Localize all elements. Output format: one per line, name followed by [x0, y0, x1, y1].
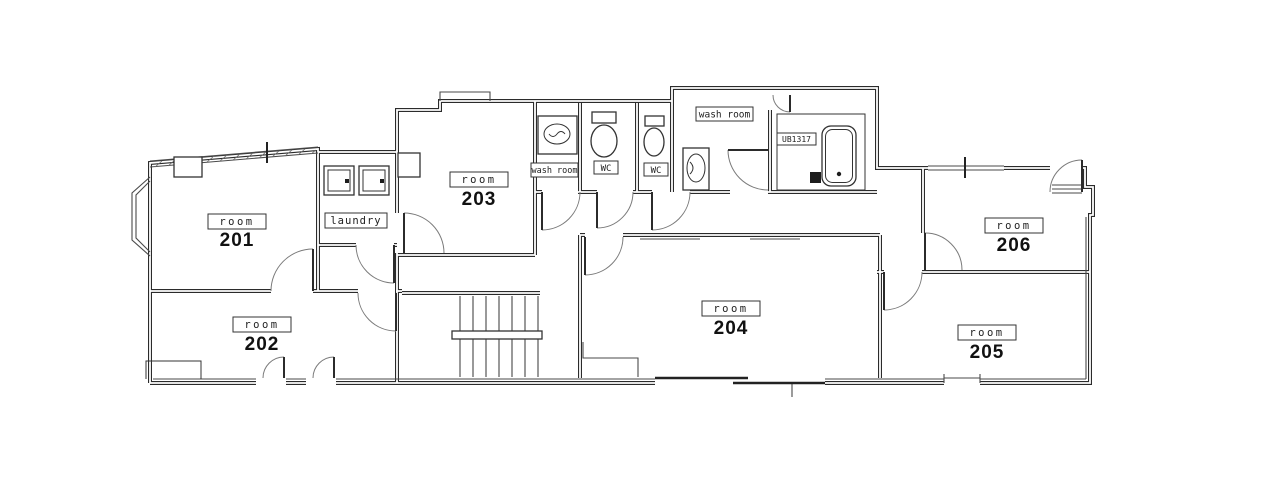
wc-b-text: WC — [651, 166, 662, 176]
wc-b-label: WC — [644, 163, 668, 176]
staircase-icon — [452, 296, 542, 377]
wc-a-text: WC — [601, 164, 612, 174]
room-205-type: room — [969, 327, 1004, 339]
door-wc-b — [652, 192, 690, 230]
washing-machine-icon-2 — [359, 166, 389, 195]
door-room-205 — [884, 272, 922, 310]
door-bath — [773, 95, 790, 112]
room-206-type: room — [996, 220, 1031, 232]
sliding-entrance-door — [655, 378, 825, 383]
room-204-label: room 204 — [702, 301, 760, 339]
wall-outline-core — [150, 88, 1093, 383]
laundry-label: laundry — [325, 213, 387, 228]
door-laundry — [356, 245, 394, 283]
room-206-number: 206 — [997, 235, 1032, 256]
door-room-201 — [271, 249, 313, 291]
unit-bath-label: UB1317 — [777, 133, 816, 145]
toilet-icon-2 — [644, 116, 664, 156]
wash-basin-icon-2 — [683, 148, 709, 190]
room-203-number: 203 — [462, 189, 497, 210]
room-206-label: room 206 — [985, 218, 1043, 256]
room-202-number: 202 — [245, 334, 280, 355]
room-204-type: room — [713, 303, 748, 315]
door-room-204 — [585, 237, 623, 275]
door-wash-room-large — [728, 150, 768, 190]
door-wc-a — [597, 192, 633, 228]
bathtub-icon — [777, 114, 865, 190]
floor-plan: room 201 room 202 room 203 room 204 room… — [0, 0, 1280, 479]
room-205-label: room 205 — [958, 325, 1016, 363]
wall-outline — [150, 88, 1093, 383]
door-room-202-b — [313, 357, 334, 378]
door-room-202-a — [263, 357, 284, 378]
door-wash-room-small — [542, 192, 580, 230]
room-201-number: 201 — [220, 230, 255, 251]
wash-room-small-text: wash room — [531, 166, 577, 176]
room-201-type: room — [219, 216, 254, 228]
wash-basin-icon — [538, 116, 577, 154]
wash-room-large-text: wash room — [699, 110, 751, 121]
toilet-icon — [591, 112, 617, 157]
door-entry-206 — [1050, 160, 1082, 192]
room-205-number: 205 — [970, 342, 1005, 363]
wash-room-small-label: wash room — [531, 163, 578, 177]
entry-closet — [146, 361, 201, 379]
room-201-label: room 201 — [208, 214, 266, 251]
door-room-203 — [404, 213, 444, 253]
stair-rail — [452, 331, 542, 339]
room-202-type: room — [244, 319, 279, 331]
unit-bath-text: UB1317 — [782, 135, 811, 144]
wc-a-label: WC — [594, 161, 618, 174]
wash-room-large-label: wash room — [696, 107, 753, 121]
room-202-label: room 202 — [233, 317, 291, 355]
room-203-label: room 203 — [450, 172, 508, 210]
door-room-206 — [925, 233, 962, 270]
walls — [150, 88, 1093, 383]
washing-machine-icon — [324, 166, 354, 195]
room-203-type: room — [461, 174, 496, 186]
laundry-text: laundry — [330, 215, 381, 227]
door-room-202 — [358, 293, 396, 331]
floor-plan-drawing: room 201 room 202 room 203 room 204 room… — [0, 0, 1280, 479]
pillar-201 — [174, 157, 202, 177]
pillar-203 — [398, 153, 420, 177]
room-204-number: 204 — [714, 318, 749, 339]
